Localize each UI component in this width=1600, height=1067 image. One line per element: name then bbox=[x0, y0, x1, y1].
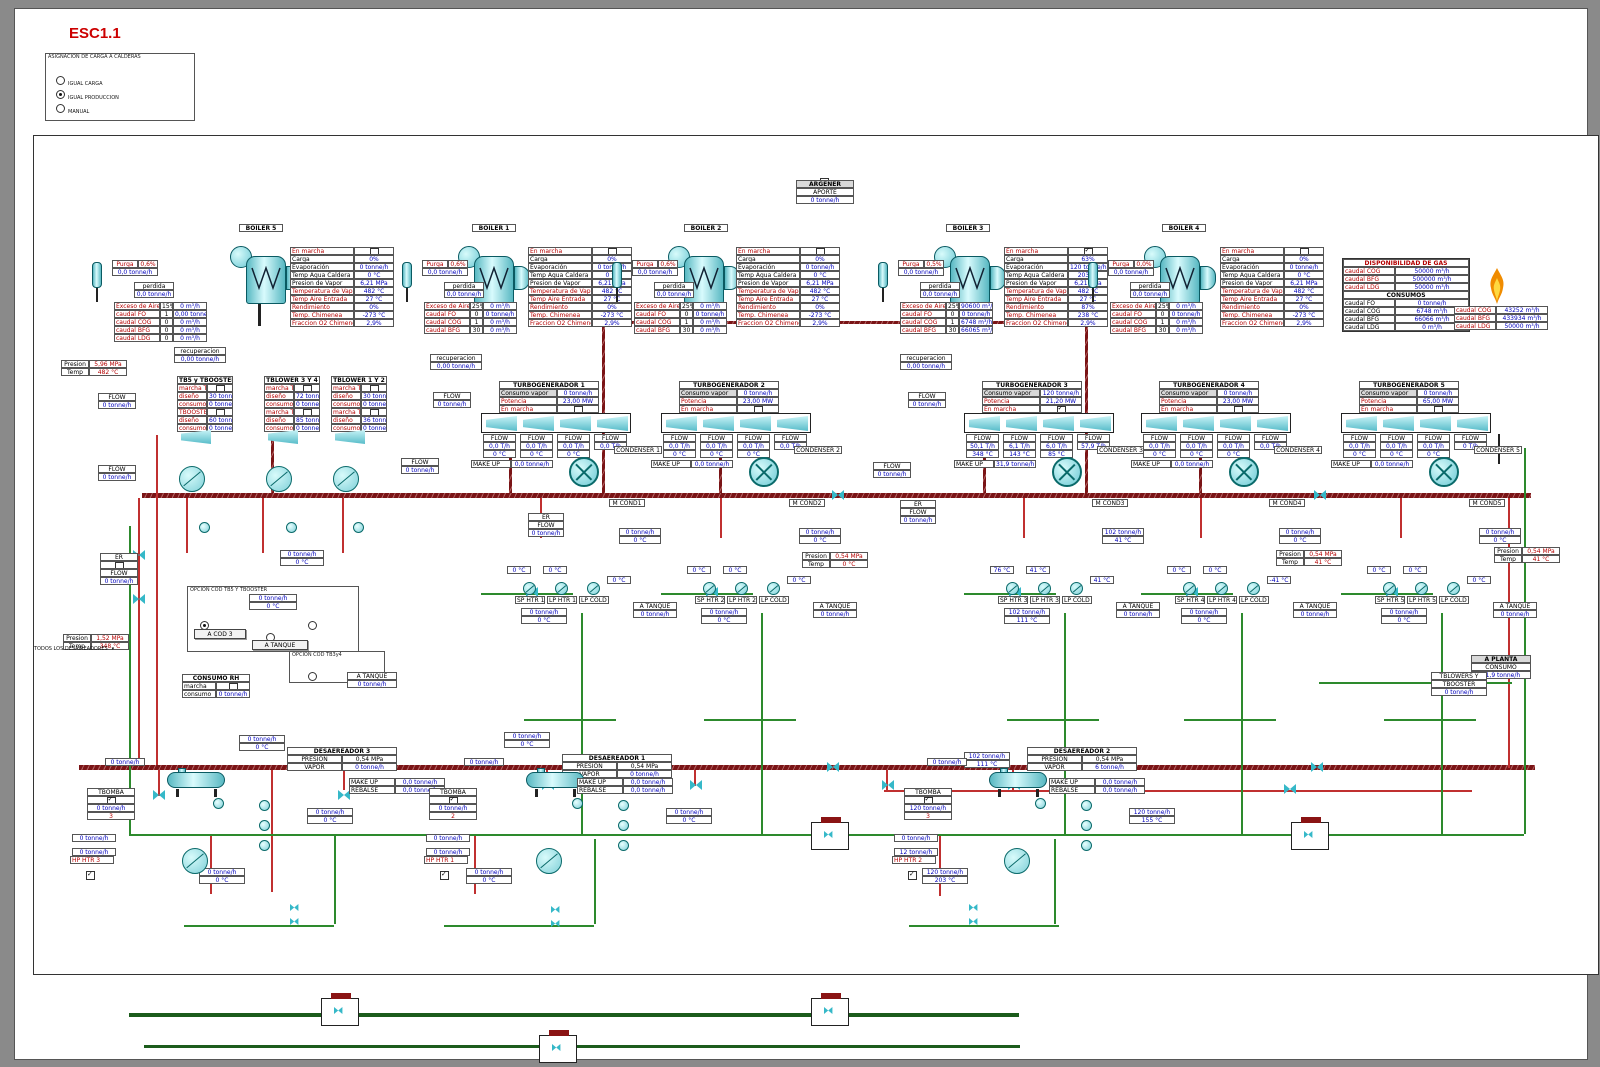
er-flow-box-2: ERFLOW0 tonne/h bbox=[900, 500, 936, 524]
temp-box: 0 °C bbox=[607, 576, 631, 584]
loss-box-cell: 0,0 tonne/h bbox=[134, 290, 174, 298]
blower-running-checkbox[interactable] bbox=[216, 409, 225, 416]
tg-flow-box: FLOW0,0 T/h0 °C bbox=[700, 434, 733, 458]
valve-icon[interactable] bbox=[1314, 490, 1326, 500]
tg3-flow-box-2-cell: FLOW bbox=[873, 462, 911, 470]
deaerator-top-box-cell: 0 tonne/h bbox=[239, 735, 285, 743]
hp-feed-box2-cell: 12 tonne/h bbox=[894, 848, 938, 856]
tg-tanque-box-cell: A TANQUE bbox=[813, 602, 857, 610]
steam-pipe bbox=[156, 435, 158, 765]
boiler-fuel-table: Exceso de Aire25%0 m³/hcaudal FO00 tonne… bbox=[424, 302, 517, 334]
far-right-pressure-box: Presion0,54 MPaTemp41 °C bbox=[1494, 547, 1560, 563]
valve-icon[interactable] bbox=[290, 904, 298, 911]
status-value: 0 tonne/h bbox=[800, 263, 840, 271]
boiler-label: BOILER 4 bbox=[1162, 224, 1206, 232]
tg-row-value: 0 tonne/h bbox=[1217, 389, 1259, 397]
condensate-box-cell: 0 °C bbox=[799, 536, 841, 544]
flow-value: 0,0 T/h bbox=[557, 442, 590, 450]
argener-box: ARGENERAPORTE0 tonne/h bbox=[796, 180, 854, 204]
condensate-pipe bbox=[1064, 613, 1066, 835]
status-label: Carga bbox=[290, 255, 354, 263]
status-label: Fraccion O2 Chimenea bbox=[1220, 319, 1284, 327]
consumo-rh-checkbox[interactable] bbox=[229, 683, 238, 690]
fuel-label: caudal COG bbox=[1110, 318, 1156, 326]
radio-left[interactable] bbox=[308, 672, 317, 681]
makeup-value: 0,0 tonne/h bbox=[623, 778, 673, 786]
steam-header-pipe bbox=[1085, 323, 1088, 494]
flow-temp: 0 °C bbox=[1343, 450, 1376, 458]
flow-label: FLOW bbox=[557, 434, 590, 442]
mcond-label: M COND1 bbox=[609, 499, 645, 507]
blowdown-pipe bbox=[882, 288, 884, 302]
blower-running-checkbox[interactable] bbox=[216, 385, 225, 392]
er-check bbox=[100, 561, 138, 569]
tg-bottom-box-cell: 0 tonne/h bbox=[701, 608, 747, 616]
tg-row-value: 0 tonne/h bbox=[1417, 389, 1459, 397]
deaerator-vapor: 6 tonne/h bbox=[1082, 763, 1137, 771]
tg-flow-box: FLOW0,0 T/h0 °C bbox=[737, 434, 770, 458]
a-cod3-button[interactable]: A COD 3 bbox=[194, 629, 246, 639]
tg1-flow-box-cell: FLOW bbox=[433, 392, 471, 400]
tg-running-checkbox[interactable] bbox=[1234, 406, 1243, 413]
blower-row-value: 30 tonne/h bbox=[361, 392, 387, 400]
opcion-radio-right[interactable] bbox=[308, 615, 318, 625]
deaerator-bottom-box-cell: 0 °C bbox=[466, 876, 512, 884]
deaerator-vessel bbox=[989, 772, 1047, 788]
status-label: Rendimiento bbox=[1004, 303, 1068, 311]
deaerator-feed-box: 0 tonne/h bbox=[105, 758, 145, 766]
makeup-label: MAKE UP bbox=[1131, 460, 1171, 468]
steam-pipe bbox=[342, 498, 344, 553]
tbomba-table: TBOMBA0 tonne/h3 bbox=[87, 788, 135, 820]
valve-icon[interactable] bbox=[551, 920, 559, 927]
steam-pipe bbox=[210, 836, 212, 894]
fuel-value: 0 m³/h bbox=[693, 326, 727, 334]
tg-tanque-box-cell: 0 tonne/h bbox=[1493, 610, 1537, 618]
flow-temp: 0 °C bbox=[483, 450, 516, 458]
assignment-option[interactable]: MANUAL bbox=[56, 98, 186, 108]
status-value: 482 °C bbox=[592, 287, 632, 295]
condensate-pipe bbox=[1007, 719, 1099, 721]
fuel-value: 0 m³/h bbox=[483, 326, 517, 334]
status-label: Temperatura de Vapor bbox=[736, 287, 800, 295]
condenser-name: CONDENSER 3 bbox=[1097, 446, 1145, 454]
valve-icon[interactable] bbox=[824, 831, 832, 838]
argener-onoff bbox=[820, 172, 830, 180]
flow-temp: 0 °C bbox=[520, 450, 553, 458]
tbomba-table: TBOMBA120 tonne/h3 bbox=[904, 788, 952, 820]
heater-icon bbox=[555, 582, 568, 595]
heater-label: LP HTR 1 bbox=[547, 596, 577, 604]
tbomba-title: TBOMBA bbox=[429, 788, 477, 796]
page-title: ESC1.1 bbox=[69, 25, 189, 47]
heater-label: LP HTR 4 bbox=[1207, 596, 1237, 604]
status-label: Temp Aire Entrada bbox=[736, 295, 800, 303]
heater-name: LP COLD 1 bbox=[579, 596, 609, 604]
tg-running-checkbox[interactable] bbox=[754, 406, 763, 413]
condensate-box: 0 tonne/h0 °C bbox=[1279, 528, 1321, 544]
turbine bbox=[964, 413, 1114, 433]
argener-title: ARGENER bbox=[796, 180, 854, 188]
flow-label: FLOW bbox=[1143, 434, 1176, 442]
valve-icon[interactable] bbox=[690, 780, 702, 790]
mcond-box: M COND5 bbox=[1469, 499, 1505, 507]
left-flow-box-2-cell: FLOW bbox=[98, 465, 136, 473]
tg1-flow-box-2: FLOW0 tonne/h bbox=[401, 458, 439, 474]
fuel-label: Exceso de Aire bbox=[114, 302, 160, 310]
tg-bottom-box-cell: 111 °C bbox=[1004, 616, 1050, 624]
tg-flow-box: FLOW0,0 T/h0 °C bbox=[1217, 434, 1250, 458]
fuel-setting: 0 bbox=[470, 310, 483, 318]
blower-cond-box-cell: 0 tonne/h bbox=[280, 550, 324, 558]
tg-bottom-box: 0 tonne/h0 °C bbox=[1181, 608, 1227, 624]
rebalse-label: REBALSE bbox=[1049, 786, 1095, 794]
blower-running-checkbox[interactable] bbox=[370, 385, 379, 392]
pump-icon bbox=[572, 798, 583, 809]
tg-table: TURBOGENERADOR 5Consumo vapor0 tonne/hPo… bbox=[1359, 381, 1459, 413]
blower-row-label: diseño bbox=[264, 416, 294, 424]
pump-icon bbox=[199, 522, 210, 533]
valve-icon[interactable] bbox=[1284, 784, 1296, 794]
blowdown-drum bbox=[878, 262, 888, 288]
heat-exchanger-icon bbox=[333, 466, 359, 492]
status-value: 0 °C bbox=[354, 271, 394, 279]
loss-box-cell: 0,0 tonne/h bbox=[920, 290, 960, 298]
mcond-label: M COND4 bbox=[1269, 499, 1305, 507]
condensate-pipe bbox=[1054, 839, 1056, 924]
fuel-setting: 30 bbox=[680, 326, 693, 334]
pump-icon bbox=[1035, 798, 1046, 809]
valve-icon[interactable] bbox=[882, 780, 894, 790]
status-label: En marcha bbox=[1220, 247, 1284, 255]
valve-icon[interactable] bbox=[969, 918, 977, 925]
loss-box-cell: perdida bbox=[920, 282, 960, 290]
blowdown-pipe bbox=[616, 288, 618, 302]
dropdown-arrow-icon[interactable]: ▾ bbox=[112, 646, 115, 652]
hp-feed-box-cell: 0 tonne/h bbox=[72, 834, 116, 842]
makeup-rebalse-table: MAKE UP0,0 tonne/hREBALSE0,0 tonne/h bbox=[1049, 778, 1145, 794]
boiler-running-checkbox[interactable] bbox=[1300, 248, 1309, 255]
status-label: Temp. Chimenea bbox=[290, 311, 354, 319]
loss-box: perdida0,0 tonne/h bbox=[134, 282, 174, 298]
hp-feed-box: 0 tonne/h bbox=[426, 834, 470, 842]
flow-value: 6,1 T/h bbox=[1003, 442, 1036, 450]
blower-table-title: TB5 y TBOOSTER bbox=[177, 376, 233, 384]
boiler-air-duct bbox=[258, 304, 261, 326]
blower-row-value bbox=[361, 408, 387, 416]
status-value: -273 °C bbox=[592, 311, 632, 319]
fuel-setting: 0 bbox=[160, 334, 173, 342]
opcion2-radio-left[interactable] bbox=[308, 666, 318, 676]
boiler-running-checkbox[interactable] bbox=[816, 248, 825, 255]
status-value: 0% bbox=[1284, 303, 1324, 311]
condensate-pipe bbox=[704, 719, 796, 721]
condenser-icon bbox=[569, 457, 599, 487]
tg-flow-box: FLOW0,0 T/h0 °C bbox=[1180, 434, 1213, 458]
a-tanque-button[interactable]: A TANQUE bbox=[252, 640, 308, 650]
valve-icon[interactable] bbox=[551, 906, 559, 913]
heater-label: LP HTR 5 bbox=[1407, 596, 1437, 604]
blower-row-value: 85 tonne/h bbox=[294, 416, 320, 424]
makeup-box: MAKE UP0,0 tonne/h bbox=[1131, 460, 1213, 468]
tg-bottom-box-cell: 0 tonne/h bbox=[1381, 608, 1427, 616]
deaerator-bottom-box: 0 tonne/h0 °C bbox=[199, 868, 245, 884]
blower-running-checkbox[interactable] bbox=[370, 409, 379, 416]
tbomba-checkbox[interactable] bbox=[107, 797, 116, 804]
hp-heater-box: HP HTR 2 bbox=[892, 856, 936, 864]
blower-table: TBLOWER 1 Y 2marcha TB1diseño30 tonne/hc… bbox=[331, 376, 387, 432]
deaerator-table: DESAEREADOR 2PRESION0,54 MPaVAPOR6 tonne… bbox=[1027, 747, 1137, 771]
steam-pipe bbox=[271, 770, 273, 892]
flow-value: 0,0 T/h bbox=[1217, 442, 1250, 450]
tg-tanque-box-cell: 0 tonne/h bbox=[813, 610, 857, 618]
valve-icon[interactable] bbox=[290, 918, 298, 925]
hp-feed-box2: 0 tonne/h bbox=[72, 848, 116, 856]
tg-flow-box: FLOW0,0 T/h0 °C bbox=[557, 434, 590, 458]
loss-box: perdida0,0 tonne/h bbox=[444, 282, 484, 298]
rebalse-label: REBALSE bbox=[577, 786, 623, 794]
tank-cap bbox=[549, 1030, 569, 1036]
fuel-value: 0 m³/h bbox=[173, 334, 207, 342]
heater-label: LP HTR 2 bbox=[727, 596, 757, 604]
deaerator-vapor: 0 tonne/h bbox=[617, 770, 672, 778]
loss-box-cell: perdida bbox=[444, 282, 484, 290]
deaerator-leg bbox=[1036, 789, 1039, 797]
fuel-value: 0 m³/h bbox=[173, 302, 207, 310]
tg-tanque-box-cell: A TANQUE bbox=[1116, 602, 1160, 610]
deaerator-row-label: PRESION bbox=[1027, 755, 1082, 763]
heater-name: LP COLD 3 bbox=[1062, 596, 1092, 604]
tg1-flow-box-cell: 0 tonne/h bbox=[433, 400, 471, 408]
valve-icon[interactable] bbox=[1304, 831, 1312, 838]
temp-box-cell: 0 °C bbox=[787, 576, 811, 584]
tanque-small-box-cell: 0 tonne/h bbox=[347, 680, 397, 688]
hp-heater-checkbox[interactable] bbox=[440, 871, 449, 880]
steam-pipe bbox=[138, 498, 140, 764]
blower-turbine bbox=[335, 430, 365, 444]
pt-value: 0,54 MPa bbox=[1304, 550, 1342, 558]
boiler-name: BOILER 3 bbox=[946, 224, 990, 232]
tg-row-value: 21,20 MW bbox=[1040, 397, 1082, 405]
assignment-option[interactable]: IGUAL PRODUCCION bbox=[56, 84, 186, 94]
deaerator-vapor: 0 tonne/h bbox=[342, 763, 397, 771]
blower-row-value: 0 tonne/h bbox=[361, 400, 387, 408]
blowdown-drum bbox=[612, 262, 622, 288]
fuel-value: 90600 m³/h bbox=[959, 302, 993, 310]
tg-tanque-box-cell: 0 tonne/h bbox=[1116, 610, 1160, 618]
recovery-box-cell: recuperacion bbox=[430, 354, 482, 362]
boiler-purge-box: Purga0,6%0,0 tonne/h bbox=[112, 260, 158, 276]
feedwater-heater-icon bbox=[1004, 848, 1030, 874]
opcion-radio-mid[interactable] bbox=[266, 627, 276, 637]
pump-icon bbox=[259, 800, 270, 811]
blower-row-label: consumo bbox=[331, 400, 361, 408]
temp-box: 0 °C bbox=[507, 566, 531, 574]
heater-label: SP HTR 3 bbox=[998, 596, 1028, 604]
tbomba-checkbox[interactable] bbox=[924, 797, 933, 804]
valve-icon[interactable] bbox=[827, 762, 839, 772]
tg-bottom-box-cell: 0 °C bbox=[521, 616, 567, 624]
makeup-value: 31,9 tonne/h bbox=[994, 460, 1036, 468]
condensate-box-cell: 0 °C bbox=[1279, 536, 1321, 544]
loss-box: perdida0,0 tonne/h bbox=[654, 282, 694, 298]
assignment-option[interactable]: IGUAL CARGA bbox=[56, 70, 186, 80]
condenser-label: CONDENSER 4 bbox=[1274, 446, 1322, 454]
valve-icon[interactable] bbox=[552, 1044, 560, 1051]
flow-label: FLOW bbox=[1003, 434, 1036, 442]
recovery-box-cell: recuperacion bbox=[900, 354, 952, 362]
fuel-label: caudal FO bbox=[900, 310, 946, 318]
valve-icon[interactable] bbox=[824, 1007, 832, 1014]
left-flow-box-2-cell: 0 tonne/h bbox=[98, 473, 136, 481]
rebalse-label: REBALSE bbox=[349, 786, 395, 794]
feedwater-heater-icon bbox=[536, 848, 562, 874]
valve-icon[interactable] bbox=[832, 490, 844, 500]
valve-icon[interactable] bbox=[153, 790, 165, 800]
hp-heater-checkbox[interactable] bbox=[908, 871, 917, 880]
mcond-label: M COND3 bbox=[1092, 499, 1128, 507]
fuel-value: 0 m³/h bbox=[173, 326, 207, 334]
status-value: 6,21 MPa bbox=[354, 279, 394, 287]
boiler-status-table: En marchaCarga0%Evaporación0 tonne/hTemp… bbox=[1220, 247, 1324, 327]
status-label: Evaporación bbox=[736, 263, 800, 271]
flow-value: 0,0 T/h bbox=[520, 442, 553, 450]
condensate-pipe bbox=[761, 613, 763, 835]
er-flow-box-1-cell: ER bbox=[528, 513, 564, 521]
heater-icon bbox=[1038, 582, 1051, 595]
er-flow-box-1: ERFLOW0 tonne/h bbox=[528, 513, 564, 537]
gas-row-label: caudal FO bbox=[1343, 299, 1395, 307]
blower-running-checkbox[interactable] bbox=[303, 409, 312, 416]
condensate-pipe bbox=[594, 839, 596, 924]
status-label: Fraccion O2 Chimenea bbox=[1004, 319, 1068, 327]
blowdown-pipe bbox=[406, 288, 408, 302]
tbomba-checkbox[interactable] bbox=[449, 797, 458, 804]
opcion-radio-left[interactable] bbox=[200, 615, 210, 625]
turbine-stage bbox=[560, 416, 591, 431]
status-label: Temp. Chimenea bbox=[736, 311, 800, 319]
deaerator-leg bbox=[573, 789, 576, 797]
flare-icon bbox=[1486, 268, 1508, 304]
blower-table: TB5 y TBOOSTERmarcha TB5diseño30 tonne/h… bbox=[177, 376, 233, 432]
status-value: 2,9% bbox=[1284, 319, 1324, 327]
fuel-value: 0 m³/h bbox=[173, 318, 207, 326]
valve-icon[interactable] bbox=[133, 594, 145, 604]
blower-row-value: 36 tonne/h bbox=[361, 416, 387, 424]
valve-icon[interactable] bbox=[969, 904, 977, 911]
deaerator-leg bbox=[214, 789, 217, 797]
blower-row-label: consumo bbox=[177, 400, 207, 408]
deaerator-presion: 0,54 MPa bbox=[1082, 755, 1137, 763]
fuel-value: 0 tonne/h bbox=[693, 310, 727, 318]
fuel-label: caudal FO bbox=[634, 310, 680, 318]
temp-box-cell: 0 °C bbox=[1403, 566, 1427, 574]
deaerator-presion: 0,54 MPa bbox=[342, 755, 397, 763]
gas-row-label: caudal BFG bbox=[1343, 315, 1395, 323]
deaerator-bottom-box-cell: 120 tonne/h bbox=[922, 868, 968, 876]
radio-manual[interactable] bbox=[56, 104, 65, 113]
deaerator-top-box: 102 tonne/h111 °C bbox=[964, 752, 1010, 768]
todos-deaireadores-dropdown[interactable]: TODOS LOS DESAIREADORES▾ bbox=[34, 646, 154, 656]
boiler-running-checkbox[interactable] bbox=[370, 248, 379, 255]
purge-pct: 0,5% bbox=[924, 260, 944, 268]
heater-label: LP COLD 3 bbox=[1062, 596, 1092, 604]
heater-icon bbox=[1415, 582, 1428, 595]
fuel-value: 0 m³/h bbox=[1169, 326, 1203, 334]
condensate-box-cell: 0 tonne/h bbox=[1479, 528, 1521, 536]
turbine-stage bbox=[1420, 416, 1451, 431]
return-header-pipe bbox=[129, 1013, 1019, 1017]
status-label: Temp Aire Entrada bbox=[1004, 295, 1068, 303]
deaerator-mid-box: 0 tonne/h0 °C bbox=[307, 808, 353, 824]
steam-pipe bbox=[939, 836, 941, 896]
loss-box-cell: perdida bbox=[1130, 282, 1170, 290]
turbine-stage bbox=[740, 416, 771, 431]
valve-icon[interactable] bbox=[334, 1007, 342, 1014]
condensate-box-cell: 0 tonne/h bbox=[1279, 528, 1321, 536]
status-label: Evaporación bbox=[528, 263, 592, 271]
status-value: 482 °C bbox=[1284, 287, 1324, 295]
condensate-pipe bbox=[524, 719, 616, 721]
blower-running-checkbox[interactable] bbox=[303, 385, 312, 392]
turbine-stage bbox=[1383, 416, 1414, 431]
boiler-unit bbox=[934, 242, 1012, 308]
status-value: 0% bbox=[800, 255, 840, 263]
fuel-label: caudal BFG bbox=[114, 326, 160, 334]
tanque-small-box-cell: A TANQUE bbox=[347, 672, 397, 680]
diagram-canvas: ARGENERAPORTE0 tonne/hDISPONIBILIDAD DE … bbox=[33, 135, 1599, 975]
purge-pct: 0,6% bbox=[658, 260, 678, 268]
hp-heater-checkbox[interactable] bbox=[86, 871, 95, 880]
radio-right[interactable] bbox=[308, 621, 317, 630]
gas-panel: DISPONIBILIDAD DE GAScaudal COG50000 m³/… bbox=[1342, 258, 1470, 332]
er-checkbox[interactable] bbox=[115, 562, 124, 569]
tanque-small-box: A TANQUE0 tonne/h bbox=[347, 672, 397, 688]
tg-row-value bbox=[1417, 405, 1459, 413]
heater-icon bbox=[1447, 582, 1460, 595]
flow-temp: 0 °C bbox=[1180, 450, 1213, 458]
tg-tanque-box: A TANQUE0 tonne/h bbox=[1293, 602, 1337, 618]
tg-running-checkbox[interactable] bbox=[574, 406, 583, 413]
blower-row-value: 30 tonne/h bbox=[207, 392, 233, 400]
status-value bbox=[800, 247, 840, 255]
hp-feed-box-cell: 0 tonne/h bbox=[894, 834, 938, 842]
boiler-running-checkbox[interactable] bbox=[1084, 248, 1093, 255]
flow-value: 0,0 T/h bbox=[1180, 442, 1213, 450]
deaerator-bottom-box-cell: 0 tonne/h bbox=[199, 868, 245, 876]
valve-icon[interactable] bbox=[1311, 762, 1323, 772]
status-label: Presion de Vapor bbox=[528, 279, 592, 287]
heater-label: SP HTR 4 bbox=[1175, 596, 1205, 604]
tg-running-checkbox[interactable] bbox=[1434, 406, 1443, 413]
er-flow-box-2-cell: ER bbox=[900, 500, 936, 508]
boiler-running-checkbox[interactable] bbox=[608, 248, 617, 255]
status-value: 2,9% bbox=[592, 319, 632, 327]
tg-running-checkbox[interactable] bbox=[1057, 406, 1066, 413]
status-value bbox=[1068, 247, 1108, 255]
status-label: Temp Aire Entrada bbox=[528, 295, 592, 303]
blower-row-label: marcha TB4 bbox=[264, 408, 294, 416]
deaerator-mid-box-cell: 0 tonne/h bbox=[307, 808, 353, 816]
status-label: Temp Agua Caldera bbox=[1220, 271, 1284, 279]
turbine-stage bbox=[703, 416, 734, 431]
blower-row-label: diseño bbox=[177, 392, 207, 400]
condensate-box: 102 tonne/h41 °C bbox=[1102, 528, 1144, 544]
opcion-value-box: 0 tonne/h0 °C bbox=[249, 594, 297, 610]
purge-label: Purga bbox=[632, 260, 658, 268]
flare-row-label: caudal COG bbox=[1454, 306, 1496, 314]
tbomba-table: TBOMBA0 tonne/h2 bbox=[429, 788, 477, 820]
